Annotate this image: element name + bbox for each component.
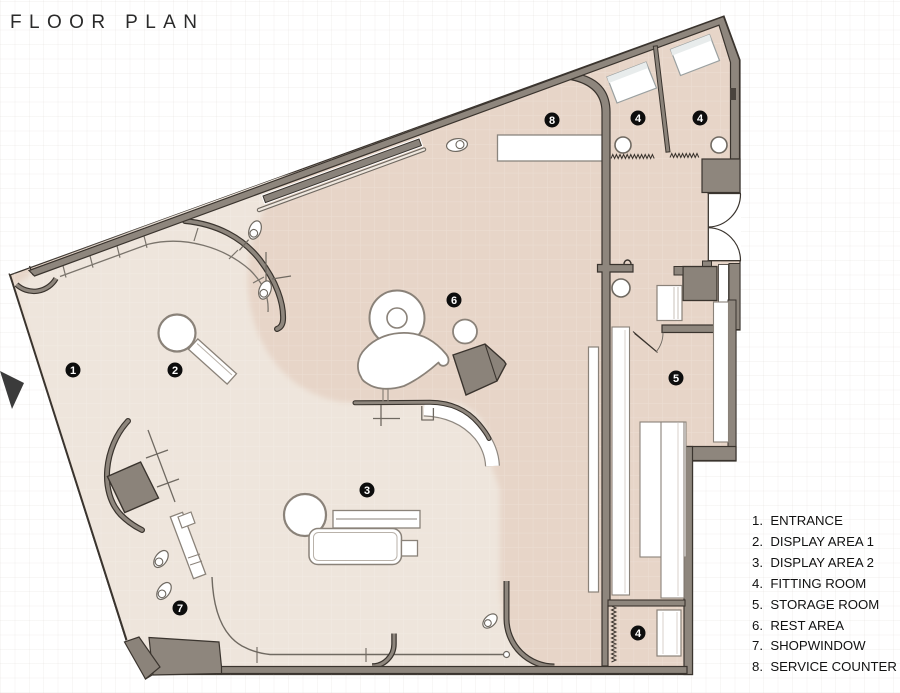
svg-text:4: 4 <box>697 113 704 125</box>
svg-text:8: 8 <box>549 115 555 127</box>
svg-text:7: 7 <box>177 603 183 615</box>
svg-text:4: 4 <box>635 628 642 640</box>
svg-text:6: 6 <box>451 295 457 307</box>
svg-text:4: 4 <box>635 113 642 125</box>
svg-text:1: 1 <box>70 365 76 377</box>
svg-text:5: 5 <box>673 373 679 385</box>
svg-text:2: 2 <box>172 365 178 377</box>
svg-text:3: 3 <box>364 485 370 497</box>
